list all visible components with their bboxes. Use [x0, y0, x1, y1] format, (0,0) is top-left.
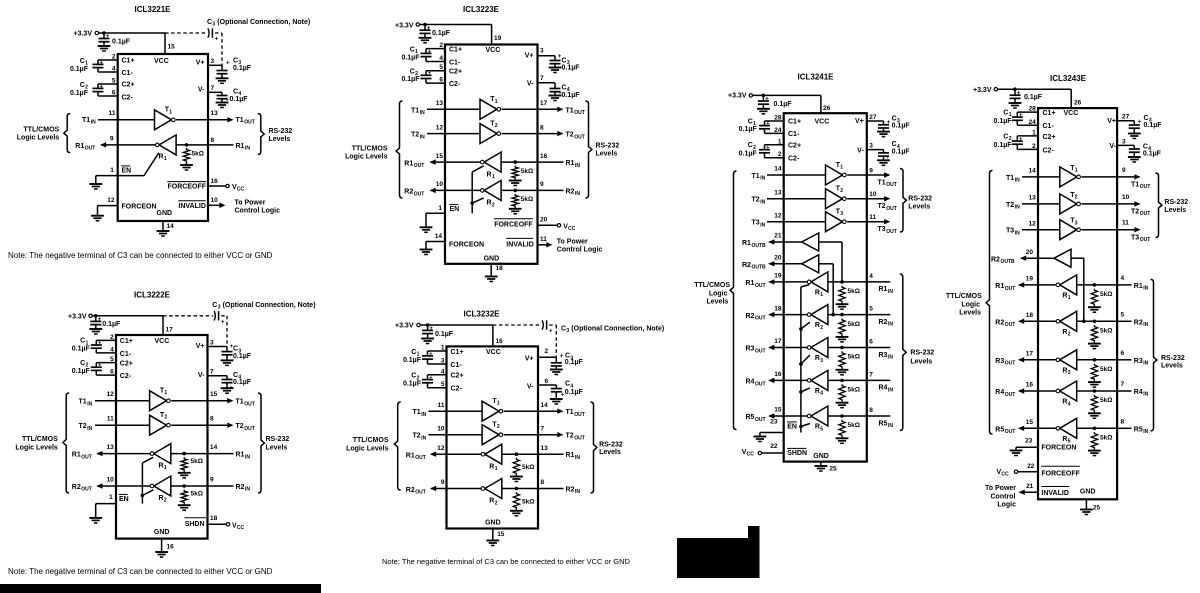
svg-text:TTL/CMOS: TTL/CMOS [352, 145, 388, 152]
svg-text:8: 8 [869, 407, 873, 414]
svg-text:12: 12 [774, 212, 782, 219]
svg-text:OUT: OUT [415, 455, 426, 461]
svg-text:2: 2 [164, 415, 167, 421]
svg-text:OUT: OUT [1140, 211, 1151, 217]
svg-text:IN: IN [1015, 230, 1020, 236]
svg-text:V+: V+ [1107, 118, 1116, 125]
svg-text:10: 10 [211, 197, 219, 204]
svg-text:4: 4 [441, 368, 445, 375]
svg-text:IN: IN [1143, 361, 1148, 367]
svg-text:13: 13 [107, 444, 115, 451]
svg-text:R3: R3 [746, 346, 755, 353]
svg-text:R1: R1 [1134, 283, 1143, 290]
svg-text:IN: IN [888, 387, 893, 393]
svg-text:14: 14 [210, 444, 218, 451]
svg-text:R: R [159, 495, 164, 502]
svg-text:Levels: Levels [1164, 207, 1186, 214]
svg-text:15: 15 [497, 531, 505, 538]
svg-text:C: C [1003, 110, 1008, 117]
svg-text:4: 4 [112, 66, 116, 73]
svg-text:+: + [1019, 113, 1022, 119]
svg-text:T1: T1 [413, 409, 421, 416]
svg-text:5kΩ: 5kΩ [848, 321, 860, 328]
svg-text:OUT: OUT [415, 490, 426, 496]
svg-text:0.1µF: 0.1µF [892, 123, 911, 130]
svg-text:VCC: VCC [486, 47, 501, 54]
svg-text:R: R [1062, 293, 1067, 300]
svg-text:R2: R2 [404, 189, 413, 196]
svg-text:GND: GND [157, 210, 173, 217]
svg-text:24: 24 [774, 127, 782, 134]
svg-text:R1: R1 [566, 160, 575, 167]
svg-text:2: 2 [1009, 136, 1012, 142]
svg-text:C: C [233, 346, 238, 353]
svg-text:7: 7 [1121, 381, 1125, 388]
svg-text:5kΩ: 5kΩ [848, 387, 860, 394]
svg-text:3: 3 [566, 328, 569, 334]
svg-text:2: 2 [110, 334, 114, 341]
svg-text:8: 8 [1121, 418, 1125, 425]
svg-text:10: 10 [436, 181, 444, 188]
svg-text:R: R [489, 498, 494, 505]
svg-text:R2: R2 [1134, 319, 1143, 326]
svg-text:1: 1 [164, 465, 167, 471]
svg-text:C: C [1003, 133, 1008, 140]
svg-text:19: 19 [494, 35, 502, 42]
svg-text:2: 2 [164, 498, 167, 504]
svg-text:9: 9 [441, 479, 445, 486]
svg-text:3: 3 [1075, 220, 1078, 226]
svg-text:16: 16 [540, 153, 548, 160]
svg-text:15: 15 [210, 391, 218, 398]
svg-text:R: R [489, 463, 494, 470]
svg-text:GND: GND [485, 519, 501, 526]
svg-text:18: 18 [496, 265, 504, 272]
svg-text:0.1µF: 0.1µF [70, 66, 89, 73]
svg-text:V+: V+ [196, 59, 205, 66]
svg-text:C: C [561, 325, 566, 332]
svg-text:26: 26 [1074, 100, 1082, 107]
svg-text:T2: T2 [1006, 202, 1014, 209]
svg-text:1: 1 [438, 205, 442, 212]
svg-text:5kΩ: 5kΩ [522, 498, 534, 505]
svg-text:R3: R3 [995, 358, 1004, 365]
svg-text:7: 7 [869, 371, 873, 378]
svg-text:1: 1 [820, 292, 823, 298]
svg-text:RS-232: RS-232 [908, 195, 932, 202]
svg-text:2: 2 [497, 424, 500, 430]
svg-text:14: 14 [167, 223, 175, 230]
svg-text:T1: T1 [1006, 175, 1014, 182]
svg-text:C2-: C2- [788, 155, 800, 162]
svg-text:2: 2 [1075, 195, 1078, 201]
svg-text:RS-232: RS-232 [596, 143, 620, 150]
svg-text:2: 2 [439, 42, 443, 49]
svg-text:4: 4 [110, 346, 114, 353]
svg-text:1: 1 [497, 401, 500, 407]
svg-text:GND: GND [813, 453, 829, 460]
svg-text:VCC: VCC [1064, 110, 1079, 117]
svg-text:25: 25 [1093, 504, 1101, 511]
svg-text:R: R [815, 322, 820, 329]
svg-text:R: R [815, 388, 820, 395]
svg-text:ICL3221E: ICL3221E [134, 5, 171, 14]
svg-text:1: 1 [840, 165, 843, 171]
svg-text:R1: R1 [742, 240, 751, 247]
svg-text:R1: R1 [75, 143, 84, 150]
svg-text:0.1µF: 0.1µF [401, 76, 420, 83]
svg-text:+3.3V: +3.3V [74, 31, 93, 38]
svg-text:4: 4 [1121, 275, 1125, 282]
svg-text:+: + [766, 145, 769, 151]
svg-text:10: 10 [1122, 194, 1130, 201]
svg-text:1: 1 [1068, 295, 1071, 301]
svg-text:5kΩ: 5kΩ [848, 422, 860, 429]
svg-text:To Power: To Power [235, 200, 266, 207]
svg-text:OUTB: OUTB [752, 265, 767, 271]
svg-text:13: 13 [774, 189, 782, 196]
svg-text:OUT: OUT [1005, 429, 1016, 435]
svg-text:1: 1 [164, 156, 167, 162]
svg-text:OUT: OUT [1005, 322, 1016, 328]
svg-text:0.1µF: 0.1µF [70, 90, 89, 97]
svg-text:T2: T2 [411, 132, 419, 139]
svg-text:RS-232: RS-232 [599, 441, 623, 448]
svg-text:IN: IN [1143, 286, 1148, 292]
svg-text:0.1µF: 0.1µF [233, 353, 252, 360]
svg-text:28: 28 [1029, 106, 1037, 113]
svg-text:5kΩ: 5kΩ [1100, 435, 1112, 442]
svg-text:0.1µF: 0.1µF [1143, 151, 1162, 158]
svg-text:6: 6 [439, 77, 443, 84]
svg-text:C: C [212, 302, 217, 309]
svg-text:R1: R1 [746, 280, 755, 287]
svg-text:R2: R2 [742, 262, 751, 269]
svg-text:8: 8 [541, 479, 545, 486]
svg-text:23: 23 [770, 418, 778, 425]
svg-text:14: 14 [541, 402, 549, 409]
svg-text:C: C [410, 69, 415, 76]
svg-text:OUT: OUT [1005, 361, 1016, 367]
svg-text:+: + [887, 120, 891, 126]
svg-text:ICL3243E: ICL3243E [1050, 74, 1087, 83]
svg-text:TTL/CMOS: TTL/CMOS [23, 127, 59, 134]
svg-text:C: C [80, 82, 85, 89]
svg-text:C: C [565, 381, 570, 388]
svg-text:IN: IN [575, 455, 580, 461]
svg-text:T1: T1 [236, 117, 244, 124]
svg-text:OUT: OUT [886, 229, 897, 235]
svg-text:5kΩ: 5kΩ [848, 288, 860, 295]
svg-text:0.1µF: 0.1µF [233, 379, 252, 386]
svg-text:TTL/CMOS: TTL/CMOS [946, 293, 982, 300]
svg-text:T3: T3 [752, 220, 760, 227]
svg-text:5kΩ: 5kΩ [1100, 328, 1112, 335]
svg-text:27: 27 [869, 114, 877, 121]
svg-text:To Power: To Power [557, 239, 588, 246]
svg-text:16: 16 [167, 544, 175, 551]
svg-text:19: 19 [774, 273, 782, 280]
svg-text:+: + [429, 326, 433, 332]
svg-text:RS-232: RS-232 [269, 128, 293, 135]
svg-text:T1: T1 [79, 399, 87, 406]
svg-text:EN: EN [119, 496, 129, 503]
svg-text:SHDN: SHDN [787, 450, 807, 457]
svg-text:IN: IN [420, 134, 425, 140]
svg-text:VCC: VCC [486, 349, 501, 356]
svg-text:RS-232: RS-232 [1164, 199, 1188, 206]
svg-text:C: C [80, 360, 85, 367]
svg-text:5kΩ: 5kΩ [521, 168, 533, 175]
svg-text:OUT: OUT [414, 163, 425, 169]
svg-text:C1-: C1- [788, 131, 800, 138]
svg-text:0.1µF: 0.1µF [403, 357, 422, 364]
svg-text:V-: V- [198, 86, 205, 93]
svg-text:2: 2 [1032, 143, 1036, 150]
svg-text:IN: IN [888, 355, 893, 361]
svg-text:T1: T1 [1131, 182, 1139, 189]
svg-text:Levels: Levels [596, 151, 618, 158]
svg-text:11: 11 [540, 236, 547, 243]
svg-text:Logic: Logic [997, 502, 1016, 509]
svg-text:OUTB: OUTB [1001, 259, 1016, 265]
svg-text:9: 9 [1122, 167, 1126, 174]
svg-text:+3.3V: +3.3V [68, 313, 87, 320]
svg-text:C2-: C2- [451, 386, 463, 393]
svg-text:C: C [233, 372, 238, 379]
svg-text:10: 10 [869, 191, 877, 198]
svg-text:1: 1 [1032, 129, 1036, 136]
svg-text:R: R [159, 463, 164, 470]
svg-text:R2: R2 [72, 484, 81, 491]
svg-text:OUT: OUT [1005, 392, 1016, 398]
svg-text:0.1µF: 0.1µF [401, 54, 420, 61]
svg-text:22: 22 [1027, 463, 1035, 470]
svg-text:5kΩ: 5kΩ [1100, 397, 1112, 404]
svg-text:V+: V+ [525, 356, 534, 363]
svg-text:+3.3V: +3.3V [728, 93, 747, 100]
svg-text:IN: IN [421, 412, 426, 418]
svg-text:OUTB: OUTB [752, 243, 767, 249]
svg-text:+: + [98, 363, 101, 369]
svg-text:C: C [411, 349, 416, 356]
svg-text:C1+: C1+ [1043, 110, 1056, 117]
svg-text:T1: T1 [411, 107, 419, 114]
svg-text:6: 6 [110, 369, 114, 376]
svg-text:7: 7 [210, 369, 214, 376]
svg-text:C2+: C2+ [449, 69, 462, 76]
svg-text:T1: T1 [878, 179, 886, 186]
svg-text:16: 16 [496, 338, 504, 345]
svg-text:R5: R5 [1134, 426, 1143, 433]
svg-text:IN: IN [1143, 392, 1148, 398]
svg-text:R: R [815, 424, 820, 431]
svg-text:6: 6 [112, 90, 116, 97]
svg-text:C2+: C2+ [451, 373, 464, 380]
svg-text:GND: GND [1080, 489, 1096, 496]
svg-text:RS-232: RS-232 [1161, 355, 1185, 362]
svg-text:1: 1 [495, 466, 498, 472]
svg-text:14: 14 [774, 166, 782, 173]
svg-text:V-: V- [527, 81, 534, 88]
svg-text:0.1µF: 0.1µF [102, 321, 121, 328]
svg-text:IN: IN [87, 401, 92, 407]
svg-text:18: 18 [1026, 312, 1034, 319]
svg-text:RS-232: RS-232 [910, 349, 934, 356]
svg-text:10: 10 [107, 477, 115, 484]
svg-text:2: 2 [1068, 332, 1071, 338]
svg-text:OUT: OUT [244, 120, 255, 126]
svg-text:+: + [560, 354, 564, 360]
svg-text:5kΩ: 5kΩ [521, 196, 533, 203]
svg-text:10: 10 [437, 425, 445, 432]
svg-text:IN: IN [888, 289, 893, 295]
svg-text:EN: EN [122, 167, 132, 174]
svg-text:9: 9 [540, 181, 544, 188]
svg-text:7: 7 [541, 425, 545, 432]
svg-text:C: C [411, 373, 416, 380]
svg-text:IN: IN [888, 423, 893, 429]
svg-text:22: 22 [770, 443, 778, 450]
svg-text:5: 5 [869, 306, 873, 313]
svg-text:TTL/CMOS: TTL/CMOS [353, 437, 389, 444]
svg-text:R3: R3 [1134, 358, 1143, 365]
svg-text:INVALID: INVALID [178, 203, 205, 210]
svg-text:C1-: C1- [449, 59, 461, 66]
svg-text:C: C [410, 46, 415, 53]
svg-text:FORCEON: FORCEON [1041, 444, 1076, 451]
svg-text:3: 3 [840, 211, 843, 217]
svg-text:Logic Levels: Logic Levels [345, 154, 388, 161]
svg-text:0.1µF: 0.1µF [233, 65, 252, 72]
svg-text:ICL3222E: ICL3222E [134, 290, 171, 299]
svg-text:+: + [1019, 137, 1022, 143]
svg-text:T2: T2 [566, 433, 574, 440]
svg-text:20: 20 [774, 255, 782, 262]
svg-text:8: 8 [210, 416, 214, 423]
svg-text:13: 13 [541, 445, 549, 452]
svg-text:Control Logic: Control Logic [235, 208, 281, 215]
svg-text:0.1µF: 0.1µF [562, 65, 581, 72]
svg-text:R: R [1062, 399, 1067, 406]
svg-text:INVALID: INVALID [1041, 490, 1068, 497]
svg-text:17: 17 [774, 338, 782, 345]
svg-text:+: + [428, 49, 431, 55]
svg-text:C: C [748, 142, 753, 149]
svg-text:Levels: Levels [707, 298, 729, 305]
svg-text:C2+: C2+ [1043, 134, 1056, 141]
svg-text:CC: CC [568, 226, 576, 232]
svg-text:C2+: C2+ [120, 360, 133, 367]
svg-text:R2: R2 [566, 188, 575, 195]
svg-text:R: R [487, 200, 492, 207]
svg-text:+: + [106, 34, 110, 40]
svg-text:ICL3232E: ICL3232E [463, 310, 500, 319]
svg-text:2: 2 [545, 348, 549, 355]
svg-text:2: 2 [495, 123, 498, 129]
svg-text:GND: GND [484, 255, 500, 262]
svg-text:1: 1 [778, 138, 782, 145]
svg-text:IN: IN [760, 176, 765, 182]
svg-text:IN: IN [1015, 205, 1020, 211]
svg-text:IN: IN [87, 426, 92, 432]
svg-text:R: R [159, 154, 164, 161]
svg-text:TTL/CMOS: TTL/CMOS [694, 282, 730, 289]
svg-text:FORCEON: FORCEON [122, 204, 157, 211]
svg-text:15: 15 [168, 44, 176, 51]
svg-text:9: 9 [110, 135, 114, 142]
svg-text:T2: T2 [79, 423, 87, 430]
svg-text:1: 1 [109, 494, 113, 501]
svg-text:19: 19 [1026, 276, 1034, 283]
svg-text:OUT: OUT [81, 487, 92, 493]
svg-text:16: 16 [774, 371, 782, 378]
svg-text:Logic: Logic [709, 290, 728, 297]
svg-text:+: + [98, 340, 101, 346]
svg-text:12: 12 [437, 445, 445, 452]
svg-text:20: 20 [540, 217, 548, 224]
svg-text:R: R [1062, 329, 1067, 336]
svg-text:OUT: OUT [755, 417, 766, 423]
svg-text:OUT: OUT [574, 134, 585, 140]
svg-text:5: 5 [1121, 311, 1125, 318]
svg-text:15: 15 [1026, 419, 1034, 426]
svg-text:T3: T3 [878, 226, 886, 233]
svg-text:0.1µF: 0.1µF [774, 101, 793, 108]
svg-text:5kΩ: 5kΩ [191, 458, 203, 465]
svg-text:INVALID: INVALID [506, 241, 533, 248]
svg-text:5kΩ: 5kΩ [848, 354, 860, 361]
svg-text:Levels: Levels [266, 445, 288, 452]
svg-text:OUT: OUT [886, 206, 897, 212]
svg-text:0.1µF: 0.1µF [565, 359, 584, 366]
svg-text:FORCEON: FORCEON [449, 241, 484, 248]
svg-text:2: 2 [495, 500, 498, 506]
svg-text:Levels: Levels [1161, 363, 1183, 370]
svg-text:7: 7 [540, 75, 544, 82]
svg-text:11: 11 [107, 416, 114, 423]
svg-text:R: R [815, 290, 820, 297]
svg-text:R4: R4 [995, 389, 1004, 396]
svg-text:+: + [429, 351, 432, 357]
svg-text:6: 6 [545, 378, 549, 385]
svg-text:17: 17 [540, 100, 548, 107]
svg-text:3: 3 [210, 340, 214, 347]
svg-text:C: C [748, 118, 753, 125]
svg-text:14: 14 [435, 233, 443, 240]
svg-text:Logic: Logic [961, 301, 980, 308]
svg-text:0.1µF: 0.1µF [1144, 122, 1163, 129]
svg-text:C1-: C1- [1043, 123, 1055, 130]
svg-text:Logic Levels: Logic Levels [346, 445, 389, 452]
svg-text:FORCEOFF: FORCEOFF [168, 183, 207, 190]
svg-text:11: 11 [109, 110, 116, 117]
svg-text:12: 12 [107, 391, 115, 398]
svg-text:2: 2 [778, 151, 782, 158]
svg-text:+: + [429, 375, 432, 381]
svg-text:V-: V- [857, 147, 864, 154]
svg-text:C: C [233, 58, 238, 65]
svg-text:IN: IN [421, 435, 426, 441]
svg-text:Control: Control [991, 493, 1016, 500]
svg-text:IN: IN [1143, 322, 1148, 328]
svg-text:5: 5 [441, 381, 445, 388]
svg-text:0.1µF: 0.1µF [994, 142, 1013, 149]
svg-text:IN: IN [760, 199, 765, 205]
svg-text:C: C [80, 58, 85, 65]
svg-text:+3.3V: +3.3V [395, 22, 414, 29]
svg-text:27: 27 [1122, 114, 1130, 121]
